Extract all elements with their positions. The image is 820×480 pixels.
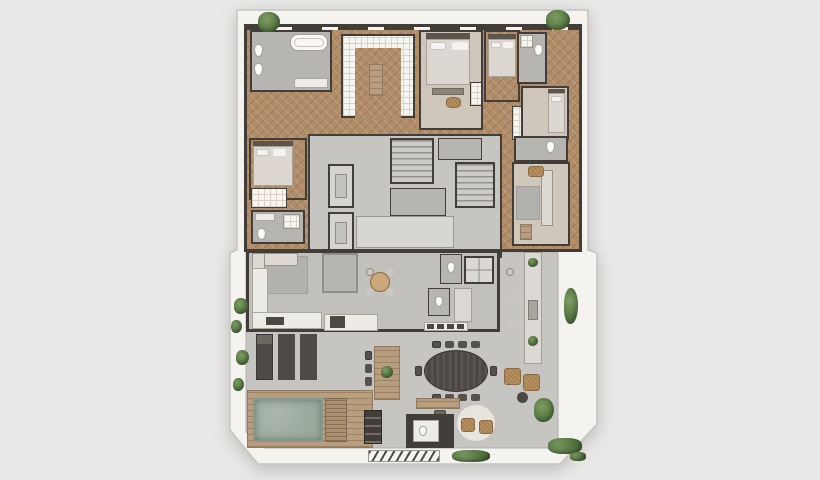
area-rug bbox=[516, 186, 540, 220]
bed-pillow bbox=[551, 96, 562, 102]
wardrobe-unit bbox=[512, 106, 522, 140]
pantry-counter bbox=[454, 288, 472, 322]
shower bbox=[520, 35, 533, 48]
table-chairs bbox=[365, 351, 372, 360]
bed-bench bbox=[432, 88, 464, 95]
bed-pillows bbox=[430, 42, 446, 50]
vanity-counter bbox=[255, 213, 275, 221]
wicker-armchair bbox=[523, 374, 540, 391]
closet-island bbox=[369, 64, 383, 96]
elevator-lobby bbox=[356, 216, 454, 248]
breakfast-chairs bbox=[366, 268, 374, 276]
range bbox=[330, 316, 345, 328]
side-table bbox=[517, 392, 528, 403]
hedge-south bbox=[452, 450, 490, 462]
console-desk bbox=[416, 398, 460, 409]
vanity-counter bbox=[294, 78, 328, 88]
wicker-armchair bbox=[504, 368, 521, 385]
elevator-1 bbox=[328, 164, 354, 208]
shower bbox=[283, 214, 300, 229]
wardrobe-unit bbox=[470, 82, 482, 106]
bathroom-3 bbox=[514, 136, 568, 162]
staircase-2 bbox=[455, 162, 495, 208]
bar-stools bbox=[506, 268, 514, 276]
staircase-1 bbox=[390, 138, 434, 184]
sofa bbox=[541, 170, 553, 226]
wicker-chair bbox=[461, 418, 475, 432]
dining-chairs-north bbox=[432, 341, 441, 348]
bar-trays bbox=[528, 300, 538, 320]
cooktop bbox=[266, 317, 284, 325]
breakfast-table bbox=[370, 272, 390, 292]
wicker-chair bbox=[479, 420, 493, 434]
kitchen-counter-horizontal bbox=[252, 312, 322, 329]
dining-chair-west bbox=[415, 366, 422, 376]
dining-table-oval bbox=[424, 350, 488, 392]
floor-plan-canvas bbox=[0, 0, 820, 480]
bed-pillows bbox=[491, 42, 501, 48]
appliances bbox=[427, 324, 434, 329]
grill-station bbox=[364, 410, 382, 444]
daybed bbox=[322, 253, 358, 293]
skylight bbox=[464, 256, 494, 284]
dining-chair-east bbox=[490, 366, 497, 376]
table-plant bbox=[381, 366, 393, 378]
storage-room bbox=[438, 138, 482, 160]
bed-pillows bbox=[256, 149, 269, 156]
armchair bbox=[528, 166, 544, 177]
bedroom-armchair bbox=[446, 97, 461, 108]
elevator-2 bbox=[328, 212, 354, 254]
kitchen-counter-vertical bbox=[252, 268, 268, 316]
coffee-table bbox=[520, 224, 532, 240]
sun-loungers bbox=[256, 334, 273, 380]
hedge-corner bbox=[570, 452, 586, 461]
bathtub bbox=[290, 34, 328, 51]
closet-shelving bbox=[251, 188, 287, 208]
pool-steps bbox=[325, 398, 347, 442]
swimming-pool bbox=[253, 398, 323, 442]
vent-grate bbox=[368, 450, 440, 462]
service-room bbox=[390, 188, 446, 216]
